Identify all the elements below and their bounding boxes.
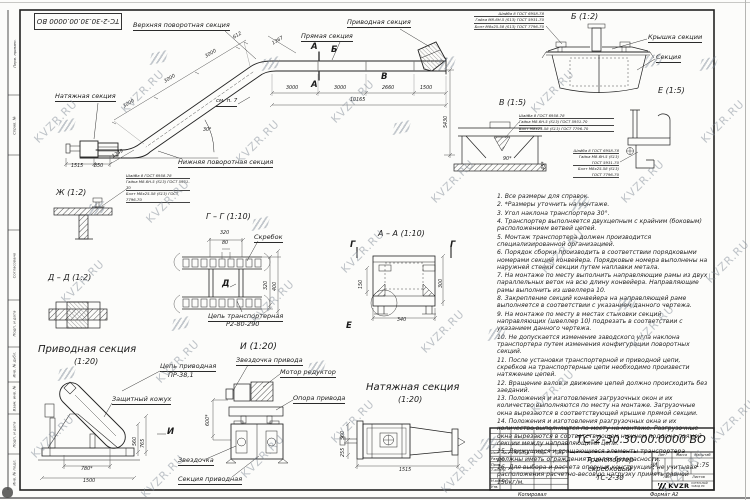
mark-e: Е xyxy=(346,322,352,331)
frame-field-vzam-inv: Взам. инв. № xyxy=(8,382,20,414)
note-item: 3. Угол наклона транспортера 30°. xyxy=(497,210,710,217)
mark-i: И xyxy=(167,428,174,437)
label-drive-chain-model: ПР-38,1 xyxy=(168,372,194,379)
dim-tension-255: 255 xyxy=(342,448,347,457)
kvzr-logo-icon xyxy=(658,483,666,489)
title-block-name-1: Транспортер xyxy=(568,456,652,464)
label-drive-support: Опора привода xyxy=(293,395,345,404)
dim-aa-150: 150 xyxy=(360,280,365,289)
dim-2660: 2660 xyxy=(382,87,394,92)
mark-g-right: Г xyxy=(450,241,455,250)
view-title-tension-section: Натяжная секция xyxy=(366,383,459,393)
dim-v-90: 90* xyxy=(503,158,512,163)
note-item: 10. Не допускается изменение заводского … xyxy=(497,334,710,356)
view-title-aa: А – А (1:10) xyxy=(378,230,425,238)
note-item: 7. На монтаже по месту выполнить направл… xyxy=(497,272,710,294)
label-conveyor-chain-model: Р2-80-290 xyxy=(226,321,259,328)
title-block-row-utv: Утв. xyxy=(491,485,499,489)
scan-smudge xyxy=(2,487,13,498)
frame-field-podp-data-2: Подп. и дата xyxy=(8,414,20,454)
frame-field-inv-podl: Инв. № подл. xyxy=(8,454,20,490)
view-mark-b: Б xyxy=(331,46,337,55)
note-item: 8. Закрепление секций конвейера на напра… xyxy=(497,295,710,310)
view-title-v: В (1:5) xyxy=(499,99,526,107)
label-tension-section: Натяжная секция xyxy=(55,93,116,102)
title-block-lit-value: И xyxy=(652,462,658,469)
label-see-note: см. п. 7 xyxy=(216,99,237,107)
label-protective-casing: Защитный кожух xyxy=(112,396,171,405)
dim-v-45: 45* xyxy=(543,161,548,170)
frame-field-sprav: Справ. № xyxy=(8,95,20,155)
frame-field-soglasovano: Согласовано xyxy=(8,230,20,300)
dim-1515: 1515 xyxy=(71,165,83,170)
fastener-specs-b: Шайба 8 ГОСТ 6958-78Гайка М8-6Н.5 (S13) … xyxy=(474,11,544,30)
label-section: Секция xyxy=(656,54,681,63)
title-block-sheets-header: Листов xyxy=(683,475,714,479)
title-block-name-2: скребковый xyxy=(568,465,652,473)
label-section-cover: Крышка секции xyxy=(648,34,702,43)
dim-total-10165: 10165 xyxy=(350,99,365,104)
title-block-col-sign: Подп. xyxy=(534,451,551,455)
kvzr-logo-subtext: КОТЕЛЬНЫЙ ЗАВОД РФ xyxy=(691,483,707,489)
note-item: 4. Транспортер выполняется двухцепным с … xyxy=(497,218,710,233)
top-margin-doc-number: ТС-2-30.30.00.0000 ВО xyxy=(34,13,122,30)
dim-gg-80: 80 xyxy=(222,242,228,247)
note-item: 2. *Размеры уточнить на монтаже. xyxy=(497,201,710,208)
title-block-col-doc: № докум. xyxy=(511,451,534,455)
note-item: 13. Положения и изготовления загрузочных… xyxy=(497,395,710,417)
view-mark-v: В xyxy=(381,73,387,82)
title-block-col-list: Лист xyxy=(500,451,511,455)
fastener-specs-zh: Шайба 8 ГОСТ 6958-78Гайка М8-6Н.5 (S13) … xyxy=(126,173,190,203)
mark-d: Д xyxy=(222,280,230,289)
dim-aa-340: 340 xyxy=(397,319,406,324)
view-title-e: Е (1:5) xyxy=(658,87,685,95)
view-title-b: Б (1:2) xyxy=(571,13,598,21)
view-scale-drive-section: (1:20) xyxy=(74,358,98,366)
view-title-i: И (1:20) xyxy=(240,343,277,352)
title-block-doc-number: ТС-2-30.30.00.0000 ВО xyxy=(568,433,714,446)
label-drive-sprocket: Звездочка привода xyxy=(236,357,303,366)
title-block-row-tkontr: Т.контр. xyxy=(491,468,507,472)
note-item: 6. Порядок сборки производить в соответс… xyxy=(497,249,710,271)
dim-i-600: 600* xyxy=(207,414,212,426)
dim-850: 850 xyxy=(94,165,103,170)
title-block-name-3: ТС-2-30 xyxy=(568,474,652,482)
view-scale-tension-section: (1:20) xyxy=(398,396,422,404)
note-item: 1. Все размеры для справок. xyxy=(497,193,710,200)
label-sprocket: Звездочка xyxy=(178,457,214,466)
mark-g-left: Г xyxy=(350,241,355,250)
frame-field-perv-primen: Перв. примен. xyxy=(8,12,20,95)
dim-drive-765: 765 xyxy=(142,439,147,448)
title-block-row-razrab: Разраб. xyxy=(491,457,505,461)
dim-tension-560: 560 xyxy=(342,431,347,440)
title-block-mass-header: Масса xyxy=(672,453,691,457)
dim-1500: 1500 xyxy=(420,87,432,92)
label-motor-reducer: Мотор редуктор xyxy=(280,369,336,378)
title-block-sheet-header: Лист xyxy=(652,475,683,479)
dim-3000-2: 3000 xyxy=(334,87,346,92)
dim-angle-30: 30° xyxy=(203,129,212,134)
note-item: 11. После установки транспортерной и при… xyxy=(497,357,710,379)
fastener-specs-v: Шайба 8 ГОСТ 6958-78Гайка М8-6Н.5 (S13) … xyxy=(519,113,614,132)
title-block-row-prov: Пров. xyxy=(491,463,501,467)
kvzr-logo: KVZR КОТЕЛЬНЫЙ ЗАВОД РФ xyxy=(652,481,714,490)
view-title-drive-section: Приводная секция xyxy=(38,345,136,355)
title-block-scale-header: Масштаб xyxy=(691,453,714,457)
note-item: 5. Монтаж транспортера должен производит… xyxy=(497,234,710,249)
dim-gg-400: 400 xyxy=(274,282,279,291)
dim-aa-300: 300 xyxy=(440,279,445,288)
title-block-col-izm: Изм. xyxy=(490,451,500,455)
dim-3000-1: 3000 xyxy=(286,87,298,92)
fastener-specs-e: Шайба 8 ГОСТ 6958-78Гайка М8-6Н.5 (S13) … xyxy=(573,148,619,178)
title-block-row-nkontr: Н.контр. xyxy=(491,479,507,483)
label-drive-section: Приводная секция xyxy=(347,19,411,28)
dim-tension-1515: 1515 xyxy=(399,469,411,474)
title-block-col-date: Дата xyxy=(551,451,568,455)
frame-field-podp-data-1: Подп. и дата xyxy=(8,300,20,347)
drawing-sheet: ТС-2-30.30.00.0000 ВО Верхняя поворотная… xyxy=(0,0,750,500)
title-block-lit-header: Лит. xyxy=(652,453,672,457)
scan-edge-top xyxy=(0,2,750,3)
label-drive-section-part: Секция приводная xyxy=(178,476,242,485)
section-mark-a-bottom: А xyxy=(311,81,318,90)
dim-drive-780: 780* xyxy=(81,468,93,473)
dim-gg-320: 320 xyxy=(220,232,229,237)
scan-edge-right xyxy=(745,0,746,500)
label-scraper: Скребок xyxy=(254,234,283,243)
dim-gg-320r: 320 xyxy=(265,281,270,290)
label-straight-section: Прямая секция xyxy=(301,33,353,42)
dim-height-5430: 5430 xyxy=(445,116,450,128)
view-title-zh: Ж (1:2) xyxy=(56,189,86,197)
label-upper-turn-section: Верхняя поворотная секция xyxy=(133,22,230,31)
note-item: 12. Вращение валов и движение цепей долж… xyxy=(497,380,710,395)
view-title-gg: Г – Г (1:10) xyxy=(206,213,251,221)
kvzr-logo-text: KVZR xyxy=(668,482,689,490)
title-block-scale-value: 1:75 xyxy=(691,462,714,469)
label-lower-turn-section: Нижняя поворотная секция xyxy=(178,159,273,168)
view-title-dd: Д – Д (1:2) xyxy=(48,274,91,282)
dim-drive-560: 560 xyxy=(134,437,139,446)
note-item: 9. На монтаже по месту в местах стыковки… xyxy=(497,311,710,333)
frame-field-inv-dubl: Инв. № дубл. xyxy=(8,347,20,382)
section-mark-a-top: А xyxy=(311,43,318,52)
dim-drive-1500: 1500 xyxy=(83,480,95,485)
scan-edge-bottom xyxy=(0,497,750,499)
